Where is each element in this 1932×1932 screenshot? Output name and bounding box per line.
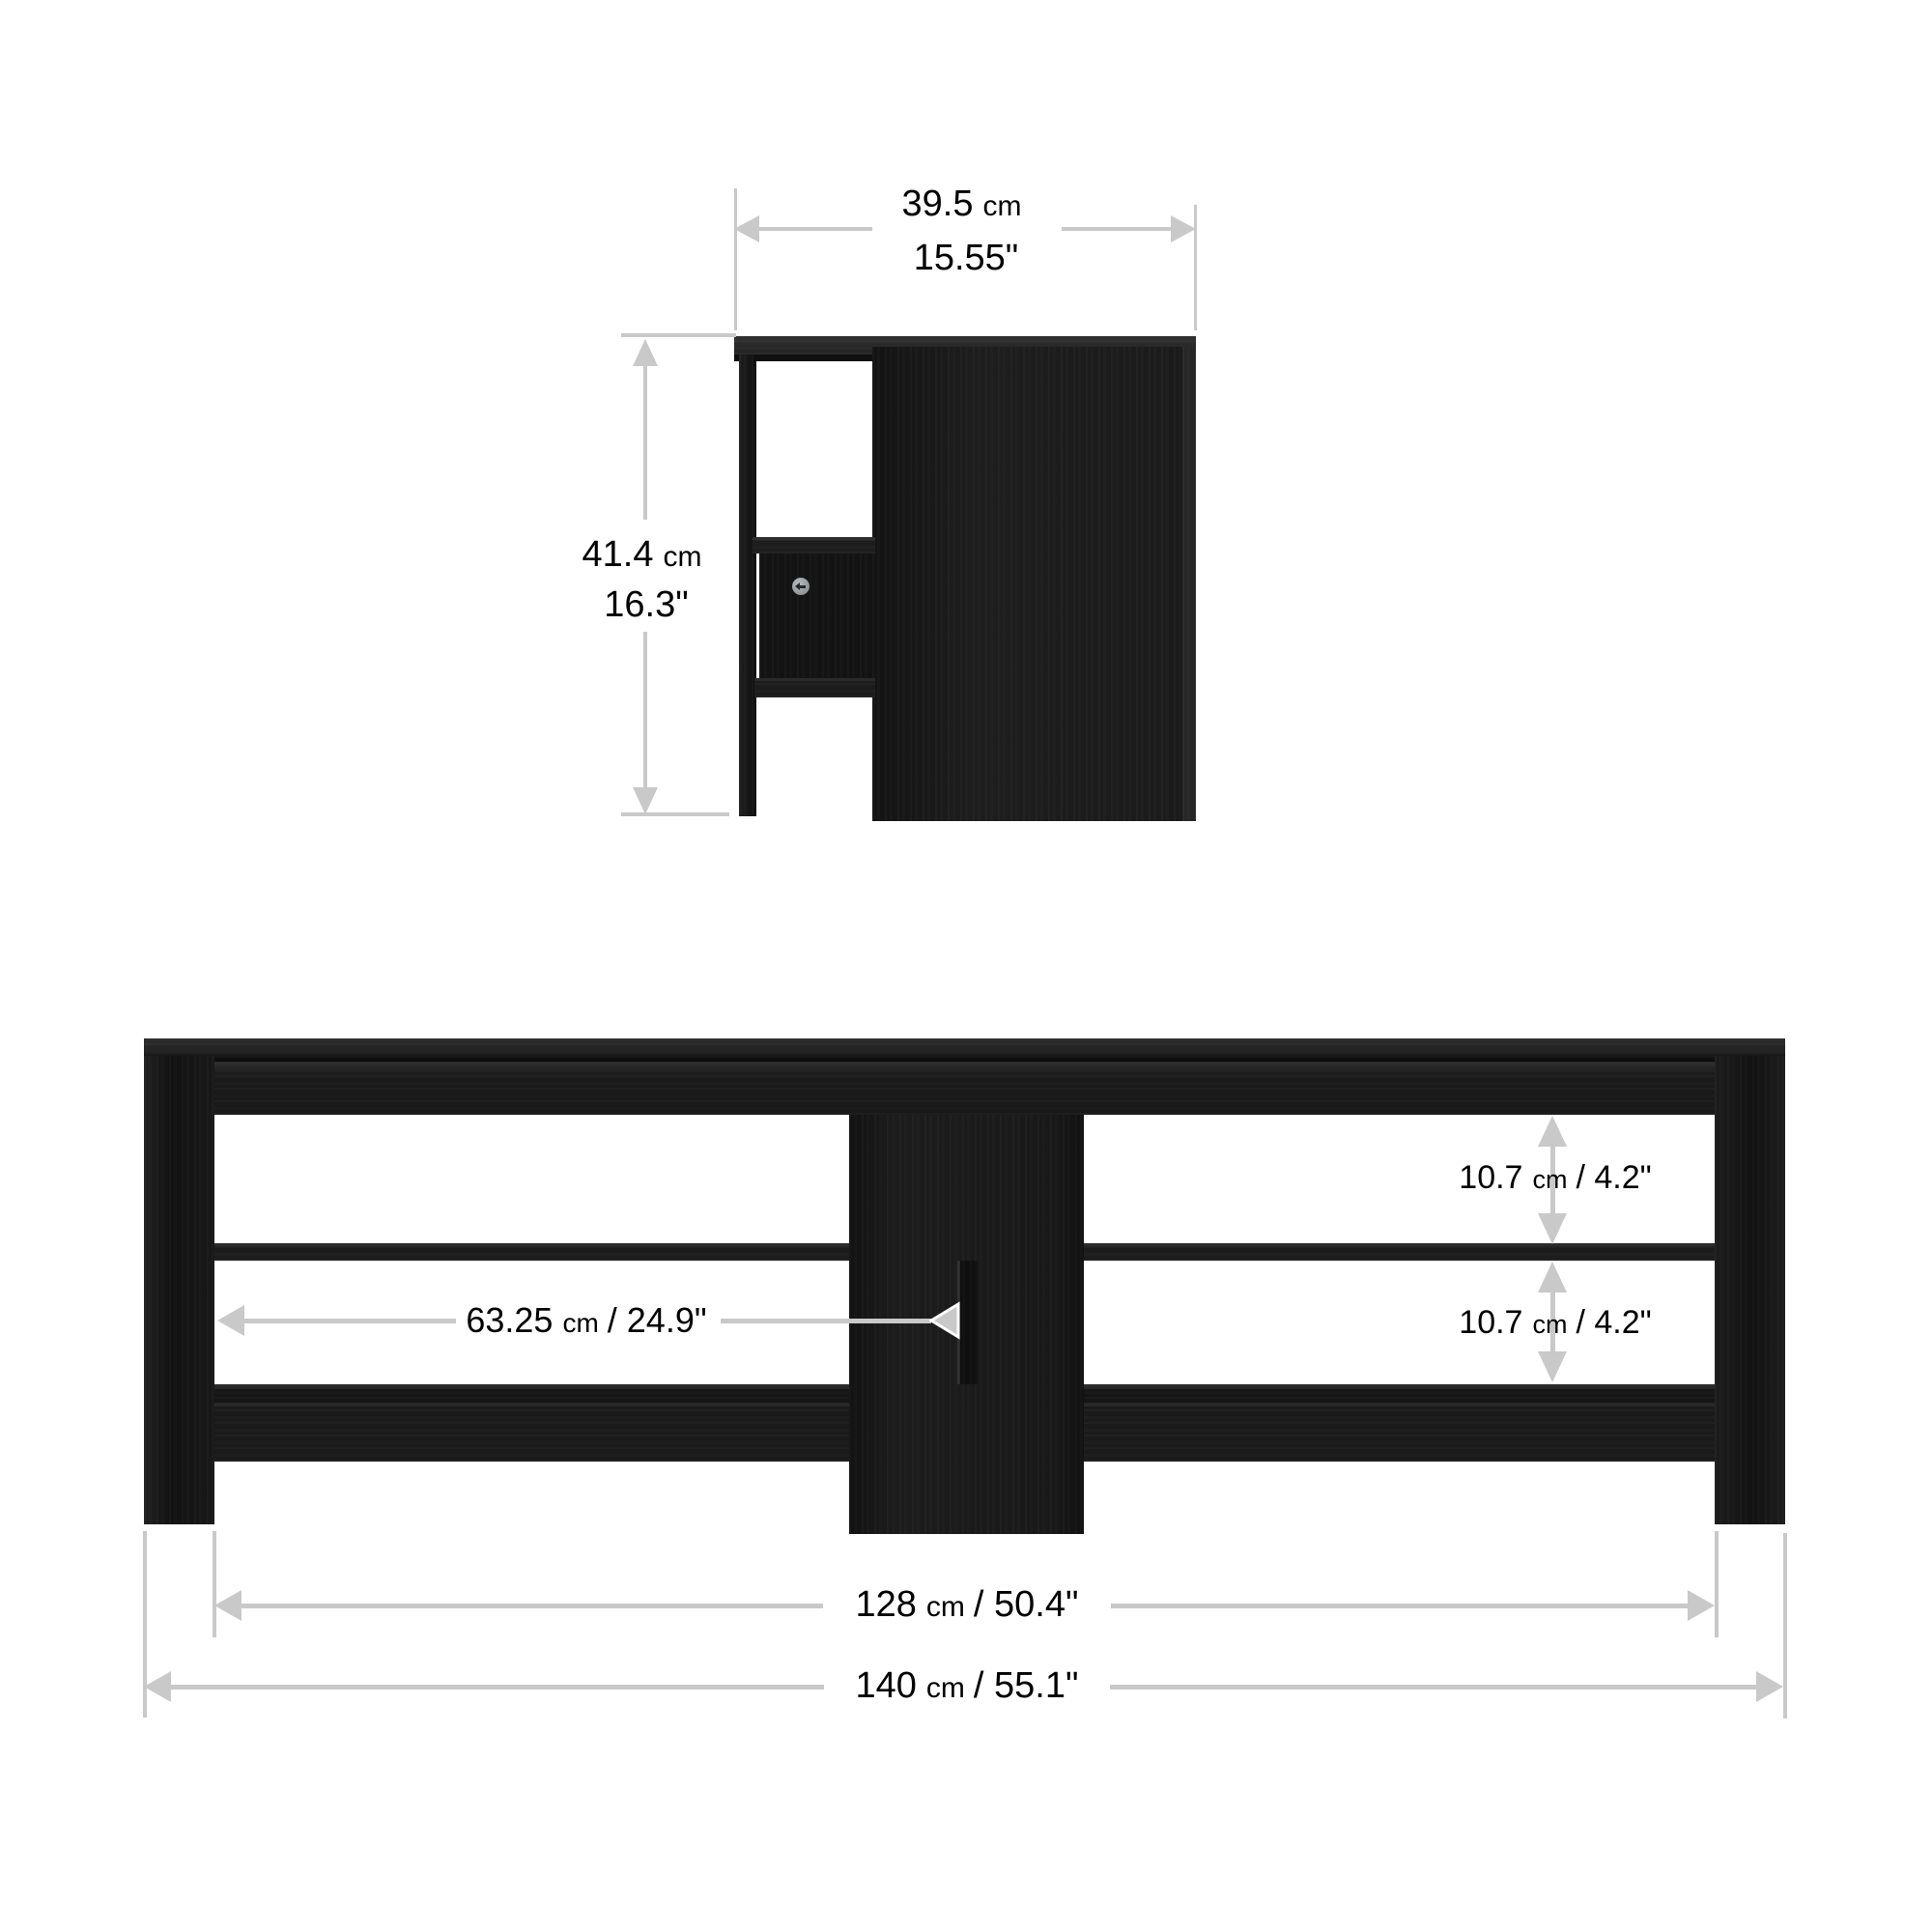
arrow-right-icon xyxy=(1688,1590,1715,1621)
arrow-down-icon xyxy=(1538,1351,1567,1382)
side-width-label: 39.5cm 15.55" xyxy=(821,181,1111,289)
arrow-up-icon xyxy=(1538,1116,1567,1147)
arrow-left-icon xyxy=(144,1671,171,1702)
shelf-span-line-left xyxy=(241,1604,823,1608)
arrow-left-icon xyxy=(734,215,759,242)
side-panel-edge xyxy=(1182,347,1196,821)
arrow-left-icon xyxy=(217,1305,244,1336)
arrow-right-outlined-icon xyxy=(929,1301,960,1340)
height-dim-line-upper xyxy=(643,365,647,520)
overall-width-label: 140cm/ 55.1" xyxy=(774,1662,1160,1717)
height-tick-top xyxy=(621,333,736,337)
front-center-divider xyxy=(957,1261,978,1384)
side-bottom-rail xyxy=(754,678,875,697)
screw-arrow-stem xyxy=(799,585,806,588)
side-height-label: 41.4cm 16.3" xyxy=(501,533,791,634)
side-width-label-cm: 39.5cm xyxy=(821,181,1111,235)
center-dim-line-right xyxy=(721,1319,931,1323)
arrow-up-icon xyxy=(633,339,658,366)
side-width-label-in: 15.55" xyxy=(821,235,1111,289)
overall-width-line-left xyxy=(170,1685,824,1690)
tv-stand-dimension-diagram: 39.5cm 15.55" 41.4cm 16.3" xyxy=(0,0,1932,1932)
gap-top-label: 10.7cm/ 4.2" xyxy=(1391,1156,1719,1206)
gap-bottom-label: 10.7cm/ 4.2" xyxy=(1391,1301,1719,1350)
shelf-span-tick-right xyxy=(1715,1531,1719,1637)
arrow-down-icon xyxy=(633,787,658,814)
arrow-right-icon xyxy=(1171,215,1196,242)
width-extension-line-left xyxy=(734,188,737,330)
front-right-leg xyxy=(1715,1056,1785,1524)
arrow-up-icon xyxy=(1538,1262,1567,1293)
front-left-leg xyxy=(144,1056,214,1524)
front-top-board xyxy=(144,1038,1785,1058)
arrow-right-icon xyxy=(1756,1671,1783,1702)
center-span-label: 63.25cm/ 24.9" xyxy=(422,1298,751,1350)
side-height-label-in: 16.3" xyxy=(501,583,791,634)
overall-width-tick-right xyxy=(1783,1533,1787,1719)
screw-icon xyxy=(792,578,810,595)
shelf-span-tick-left xyxy=(213,1531,216,1637)
front-top-rail xyxy=(214,1058,1715,1115)
side-panel xyxy=(872,347,1196,821)
arrow-down-icon xyxy=(1538,1213,1567,1244)
height-dim-line-lower xyxy=(643,632,647,788)
side-height-label-cm: 41.4cm xyxy=(501,533,791,583)
shelf-span-label: 128cm/ 50.4" xyxy=(774,1581,1160,1635)
shelf-span-line-right xyxy=(1111,1604,1689,1608)
arrow-left-icon xyxy=(214,1590,241,1621)
overall-width-line-right xyxy=(1110,1685,1756,1690)
